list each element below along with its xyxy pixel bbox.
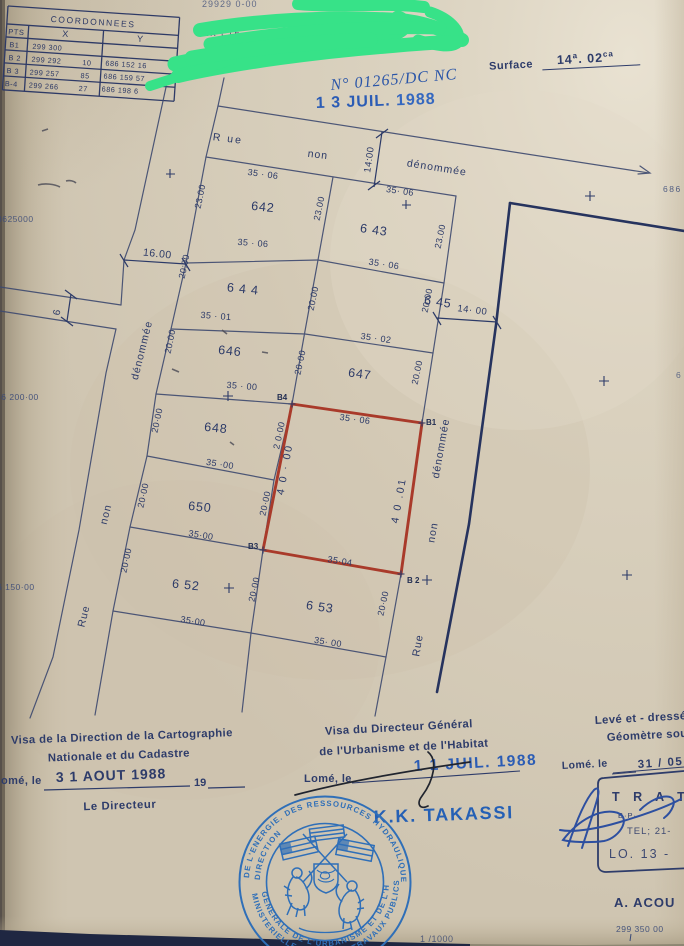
svg-text:29929 0-00: 29929 0-00	[202, 0, 258, 9]
svg-text:B1: B1	[426, 418, 437, 427]
svg-text:Le Directeur: Le Directeur	[83, 799, 157, 814]
svg-text:6: 6	[676, 370, 681, 380]
svg-text:B4: B4	[277, 393, 288, 402]
svg-text:B 3: B 3	[6, 66, 19, 76]
svg-text:omé, le: omé, le	[1, 775, 42, 787]
svg-text:B 2: B 2	[407, 576, 420, 585]
svg-text:A. ACOU: A. ACOU	[614, 895, 675, 910]
svg-text:6 52: 6 52	[171, 577, 200, 594]
svg-text:19: 19	[194, 777, 206, 789]
svg-text:10: 10	[82, 58, 92, 68]
svg-text:Lomé. le: Lomé. le	[562, 758, 608, 772]
svg-text:TEL; 21-: TEL; 21-	[627, 826, 671, 837]
svg-text:Y: Y	[137, 34, 144, 44]
svg-text:6 150·00: 6 150·00	[0, 582, 35, 592]
svg-text:B1: B1	[9, 40, 20, 50]
svg-text:B-4: B-4	[5, 79, 18, 89]
svg-text:85: 85	[80, 71, 90, 81]
svg-text:686: 686	[663, 184, 682, 194]
svg-text:642: 642	[251, 199, 276, 215]
svg-text:650: 650	[188, 499, 213, 515]
svg-text:PTS: PTS	[8, 27, 25, 37]
svg-text:646: 646	[218, 343, 243, 359]
svg-text:648: 648	[204, 420, 229, 436]
svg-text:86 200·00: 86 200·00	[0, 392, 39, 402]
svg-text:299 350 00: 299 350 00	[616, 924, 664, 934]
svg-text:B3: B3	[248, 542, 259, 551]
svg-text:Surface: Surface	[489, 58, 533, 72]
svg-text:X: X	[62, 29, 69, 39]
svg-text:LO. 13 -: LO. 13 -	[609, 847, 670, 861]
svg-text:8625000: 8625000	[0, 214, 34, 224]
svg-text:non: non	[307, 148, 329, 162]
svg-text:27: 27	[78, 84, 88, 94]
svg-text:B 2: B 2	[8, 53, 21, 63]
svg-text:1 /1000: 1 /1000	[420, 934, 454, 944]
